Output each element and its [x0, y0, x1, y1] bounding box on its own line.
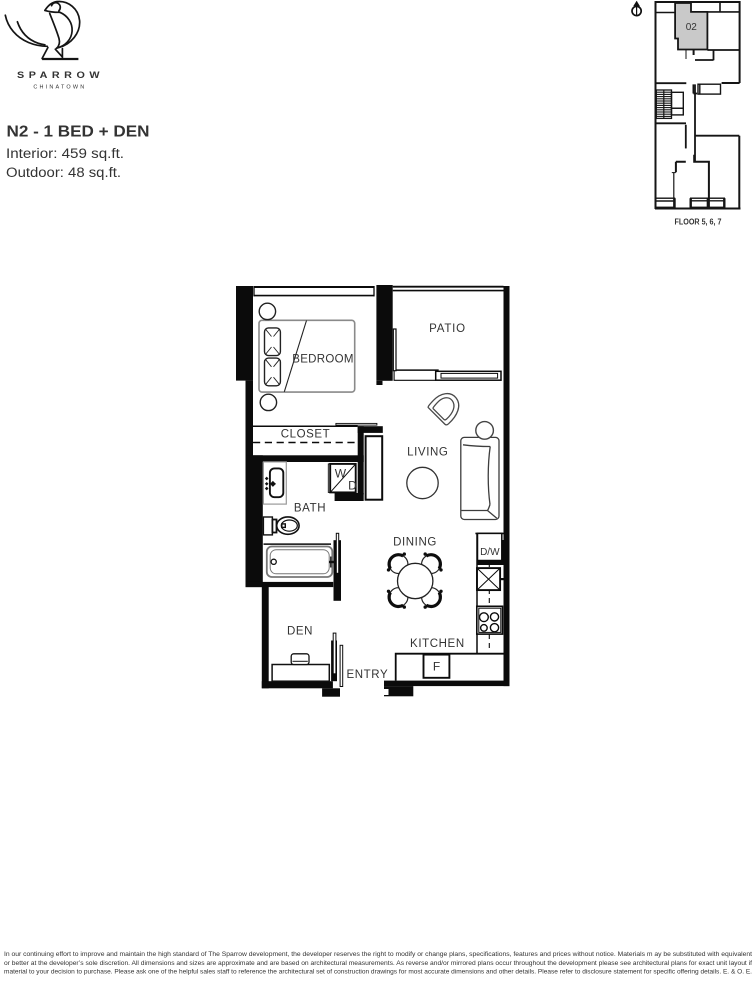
svg-text:FLOOR 5, 6, 7: FLOOR 5, 6, 7 — [675, 217, 722, 226]
svg-text:CHINATOWN: CHINATOWN — [33, 85, 86, 91]
svg-text:Outdoor: 48 sq.ft.: Outdoor: 48 sq.ft. — [6, 165, 121, 180]
svg-text:DEN: DEN — [287, 626, 313, 638]
svg-text:D/W: D/W — [480, 547, 500, 558]
svg-text:D: D — [348, 479, 357, 493]
svg-text:W: W — [335, 467, 347, 481]
svg-text:Interior: 459 sq.ft.: Interior: 459 sq.ft. — [6, 146, 124, 161]
svg-text:PATIO: PATIO — [429, 323, 466, 335]
svg-text:material to your decision to p: material to your decision to purchase. P… — [4, 969, 752, 976]
svg-text:BEDROOM: BEDROOM — [292, 353, 354, 365]
svg-text:N2 - 1 BED + DEN: N2 - 1 BED + DEN — [7, 124, 150, 141]
svg-text:BATH: BATH — [294, 502, 326, 514]
svg-text:or better at the developer’s s: or better at the developer’s sole discre… — [4, 960, 752, 967]
svg-text:DINING: DINING — [393, 537, 437, 549]
svg-text:KITCHEN: KITCHEN — [410, 638, 465, 650]
svg-text:LIVING: LIVING — [407, 447, 448, 459]
svg-text:F: F — [433, 659, 440, 673]
svg-text:ENTRY: ENTRY — [347, 669, 389, 681]
svg-text:CLOSET: CLOSET — [281, 428, 331, 440]
svg-text:02: 02 — [686, 22, 698, 33]
svg-text:In our continuing effort to im: In our continuing effort to improve and … — [4, 951, 752, 958]
svg-text:SPARROW: SPARROW — [17, 70, 104, 81]
